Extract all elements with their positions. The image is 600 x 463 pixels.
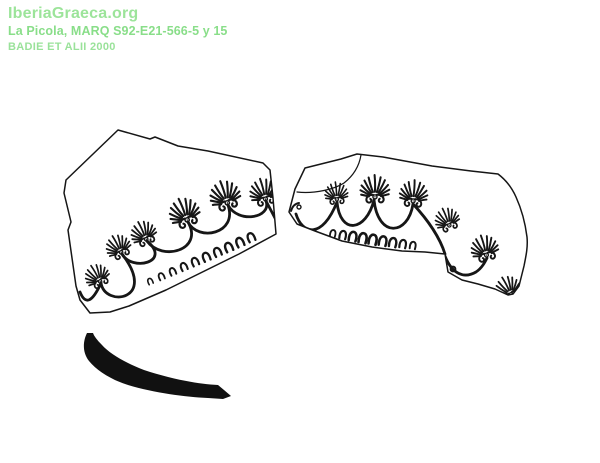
pottery-figure [0,0,600,463]
sherd-outline [64,130,276,313]
page: IberiaGraeca.org La Picola, MARQ S92-E21… [0,0,600,463]
left-sherd [64,130,280,313]
rim-profile-stroke [84,333,231,399]
right-sherd [289,154,527,305]
